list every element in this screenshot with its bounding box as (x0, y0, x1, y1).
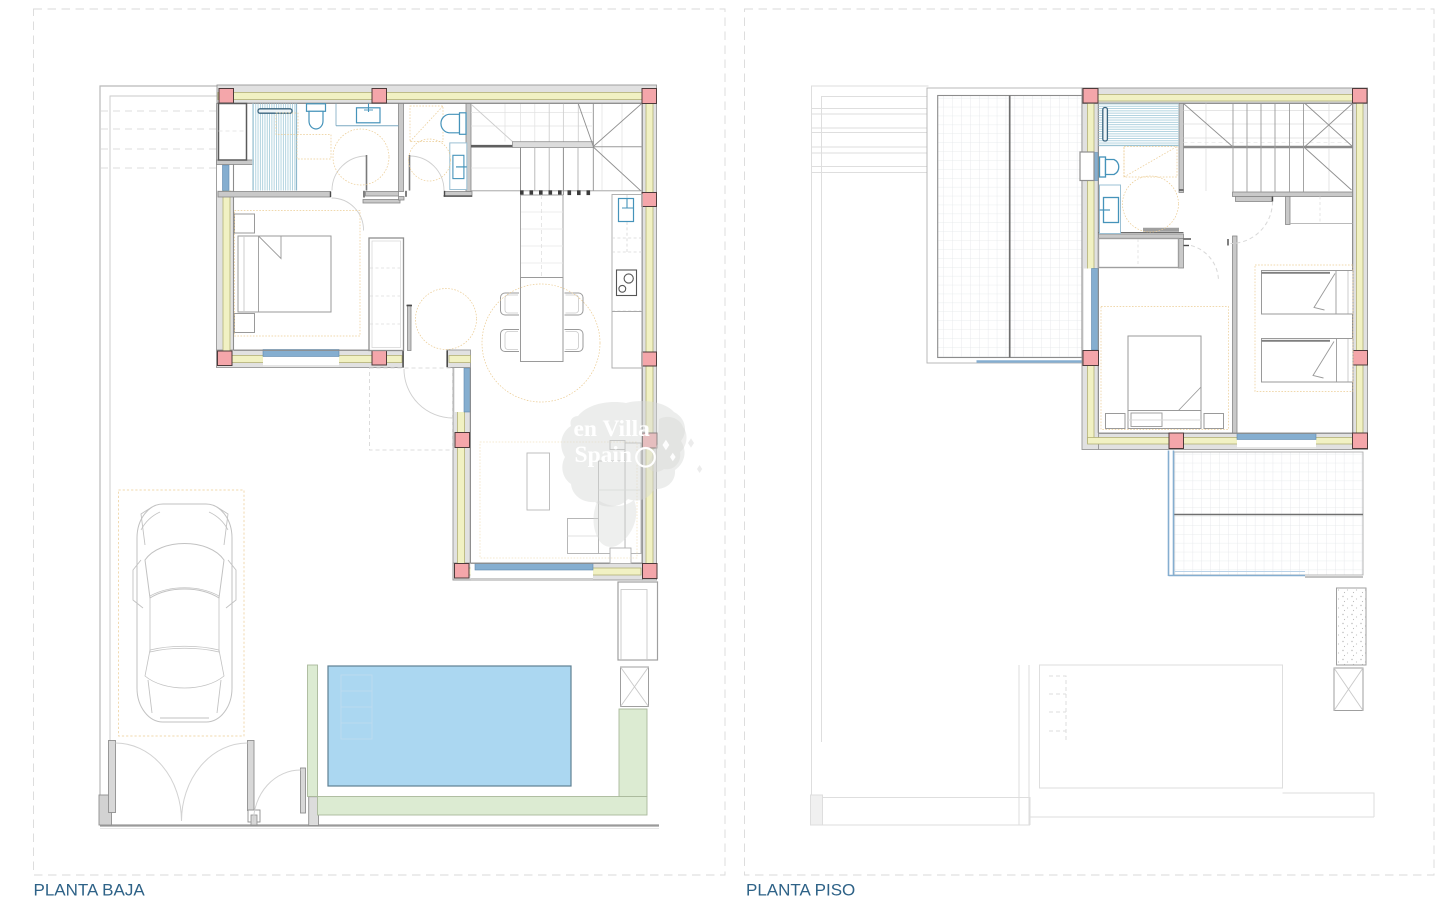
svg-text:Spain: Spain (575, 442, 633, 468)
svg-text:PLANTA BAJA: PLANTA BAJA (34, 881, 146, 900)
svg-text:en Villa: en Villa (574, 416, 651, 442)
svg-text:PLANTA PISO: PLANTA PISO (746, 881, 855, 900)
